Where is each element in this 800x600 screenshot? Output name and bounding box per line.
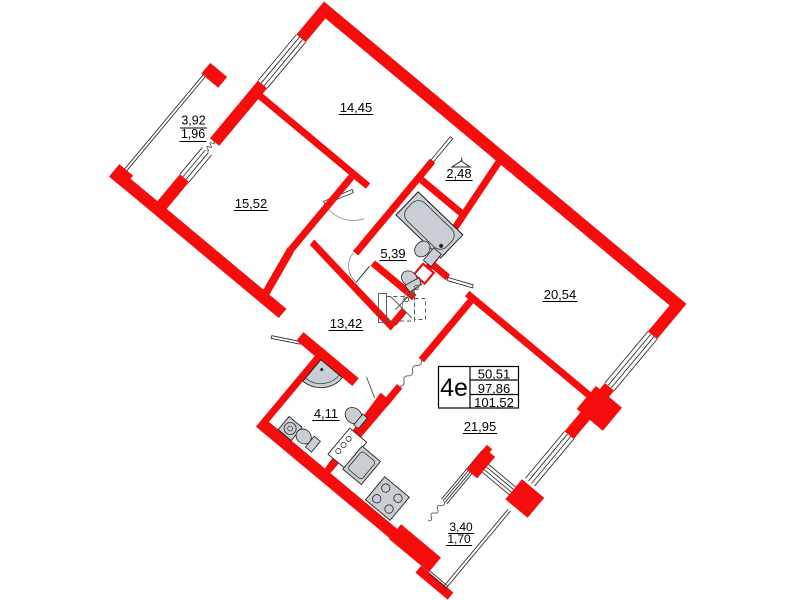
svg-text:101,52: 101,52 bbox=[474, 395, 514, 410]
svg-text:15,52: 15,52 bbox=[235, 196, 268, 211]
svg-text:1,70: 1,70 bbox=[447, 532, 471, 546]
svg-text:3,92: 3,92 bbox=[181, 114, 205, 128]
svg-text:5,39: 5,39 bbox=[380, 246, 405, 261]
svg-text:20,54: 20,54 bbox=[544, 287, 577, 302]
svg-text:21,95: 21,95 bbox=[464, 419, 497, 434]
svg-text:2,48: 2,48 bbox=[446, 166, 471, 181]
svg-text:1,96: 1,96 bbox=[181, 127, 205, 141]
svg-text:13,42: 13,42 bbox=[330, 316, 363, 331]
svg-text:97,86: 97,86 bbox=[478, 381, 511, 396]
svg-text:50,51: 50,51 bbox=[478, 367, 511, 382]
svg-text:4,11: 4,11 bbox=[314, 406, 338, 421]
svg-text:14,45: 14,45 bbox=[340, 100, 373, 115]
svg-text:4е: 4е bbox=[440, 374, 468, 402]
